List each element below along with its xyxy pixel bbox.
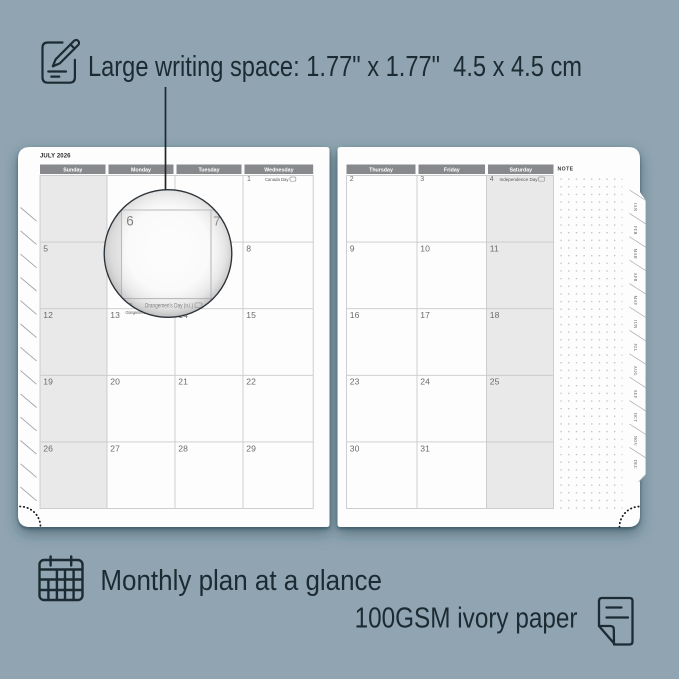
svg-text:29: 29 (246, 443, 256, 453)
svg-text:AUG: AUG (633, 366, 638, 376)
svg-text:19: 19 (43, 377, 53, 387)
svg-text:Sunday: Sunday (63, 168, 82, 174)
svg-text:JAN: JAN (633, 203, 638, 212)
svg-text:MAY: MAY (633, 295, 638, 305)
svg-text:22: 22 (246, 377, 256, 387)
svg-text:JULY 2026: JULY 2026 (40, 154, 71, 160)
svg-text:17: 17 (420, 310, 430, 320)
svg-text:JUL: JUL (633, 343, 638, 351)
svg-text:3: 3 (420, 176, 424, 183)
svg-text:21: 21 (178, 377, 188, 387)
svg-text:23: 23 (350, 377, 360, 387)
svg-text:8: 8 (246, 244, 251, 254)
svg-text:Tuesday: Tuesday (198, 168, 219, 174)
svg-text:12: 12 (43, 310, 53, 320)
svg-text:Wednesday: Wednesday (264, 168, 293, 174)
svg-text:APR: APR (633, 273, 638, 282)
svg-text:DEC: DEC (633, 460, 638, 469)
svg-text:18: 18 (490, 310, 500, 320)
svg-text:25: 25 (490, 377, 500, 387)
svg-text:1: 1 (247, 176, 251, 183)
svg-text:13: 13 (110, 310, 120, 320)
svg-text:SEP: SEP (633, 390, 638, 398)
svg-text:Large writing space: 1.77" x 1: Large writing space: 1.77" x 1.77" 4.5 x… (88, 51, 582, 83)
svg-text:2: 2 (350, 176, 354, 183)
svg-text:11: 11 (490, 244, 499, 254)
svg-text:9: 9 (350, 244, 355, 254)
svg-text:26: 26 (43, 443, 53, 453)
svg-text:Friday: Friday (444, 168, 460, 174)
svg-text:5: 5 (43, 244, 48, 254)
svg-text:27: 27 (110, 443, 120, 453)
svg-text:24: 24 (420, 377, 430, 387)
svg-text:Thursday: Thursday (369, 168, 393, 174)
svg-text:4: 4 (490, 176, 494, 183)
svg-text:31: 31 (420, 443, 430, 453)
svg-text:20: 20 (110, 377, 120, 387)
svg-text:Monday: Monday (131, 168, 151, 174)
svg-text:NOTE: NOTE (558, 167, 574, 173)
svg-text:FEB: FEB (633, 226, 638, 235)
svg-text:100GSM ivory paper: 100GSM ivory paper (355, 603, 578, 635)
svg-text:16: 16 (350, 310, 360, 320)
svg-text:Saturday: Saturday (509, 168, 532, 174)
svg-text:Monthly plan at a glance: Monthly plan at a glance (100, 565, 382, 597)
svg-text:NOV: NOV (633, 436, 638, 446)
svg-text:28: 28 (178, 443, 188, 453)
svg-text:JUN: JUN (633, 320, 638, 329)
svg-text:15: 15 (246, 310, 256, 320)
svg-text:OCT: OCT (633, 413, 638, 422)
svg-text:Independence Day: Independence Day (500, 177, 539, 182)
svg-text:30: 30 (350, 443, 360, 453)
svg-text:Canada Day: Canada Day (265, 177, 289, 182)
svg-text:MAR: MAR (633, 249, 638, 259)
svg-text:10: 10 (420, 244, 430, 254)
